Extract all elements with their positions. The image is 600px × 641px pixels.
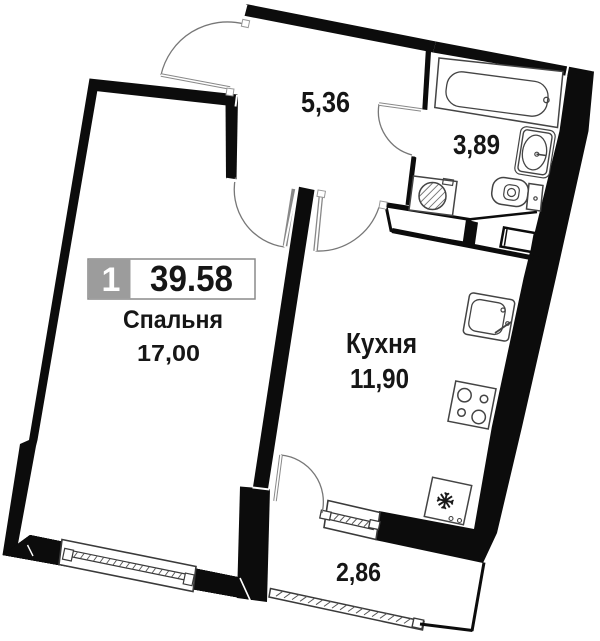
svg-text:11,90: 11,90 xyxy=(350,363,409,394)
svg-text:1: 1 xyxy=(102,261,121,299)
svg-text:3,89: 3,89 xyxy=(453,129,500,160)
svg-text:Кухня: Кухня xyxy=(346,328,417,360)
svg-text:39.58: 39.58 xyxy=(150,258,233,299)
svg-text:2,86: 2,86 xyxy=(336,557,381,587)
svg-text:17,00: 17,00 xyxy=(137,340,200,366)
svg-text:5,36: 5,36 xyxy=(301,87,350,119)
svg-text:Спальня: Спальня xyxy=(123,306,223,334)
